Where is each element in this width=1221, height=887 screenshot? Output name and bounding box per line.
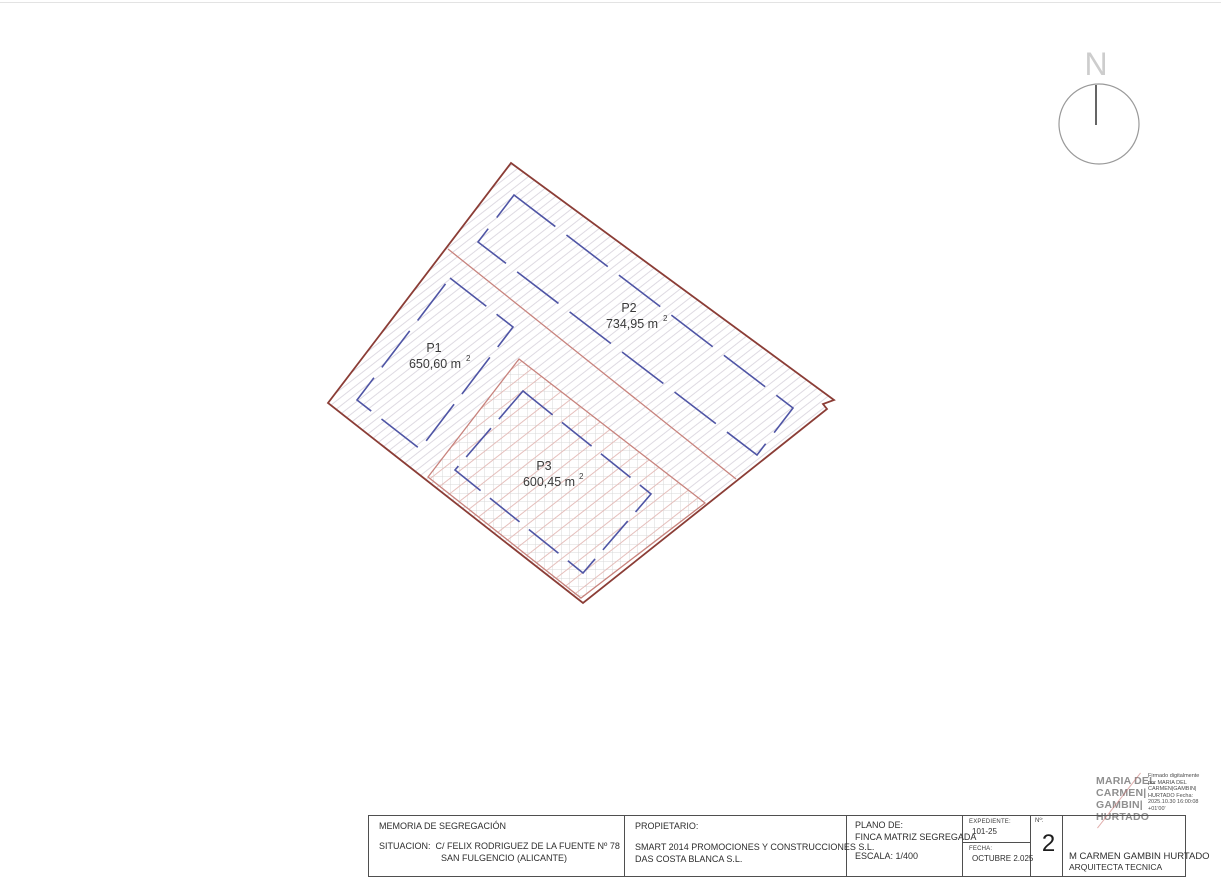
titleblock-project-cell: MEMORIA DE SEGREGACIÓN SITUACION: C/ FEL… [369, 816, 625, 876]
signature-name-line: GAMBIN| [1096, 799, 1156, 811]
title-block: MEMORIA DE SEGREGACIÓN SITUACION: C/ FEL… [368, 815, 1186, 877]
fecha-label: FECHA: [969, 846, 1030, 852]
fecha-value: OCTUBRE 2.025 [972, 854, 1030, 863]
author-name: M CARMEN GAMBIN HURTADO [1069, 851, 1210, 862]
north-circle [1059, 84, 1139, 164]
parcel-p2-area: 734,95 m [606, 317, 658, 331]
plano-label: PLANO DE: [855, 820, 962, 830]
expediente-label: EXPEDIENTE: [969, 819, 1030, 825]
parcel-p2-area-sup: 2 [663, 314, 668, 323]
escala-value: ESCALA: 1/400 [855, 851, 962, 861]
sheet-number-value: 2 [1035, 830, 1062, 858]
titleblock-author-cell: M CARMEN GAMBIN HURTADO ARQUITECTA TECNI… [1063, 816, 1185, 876]
fecha-subcell: FECHA: OCTUBRE 2.025 [963, 843, 1030, 876]
parcel-p1-area-sup: 2 [466, 354, 471, 363]
project-title: MEMORIA DE SEGREGACIÓN [379, 821, 624, 831]
titleblock-owner-cell: PROPIETARIO: SMART 2014 PROMOCIONES Y CO… [625, 816, 847, 876]
north-letter: N [1084, 46, 1107, 82]
situacion-value: C/ FELIX RODRIGUEZ DE LA FUENTE Nº 78 [436, 841, 620, 851]
north-arrow: N [1059, 46, 1139, 164]
drawing-sheet: P1 650,60 m 2 P2 734,95 m 2 P3 600,45 m … [0, 0, 1221, 887]
expediente-subcell: EXPEDIENTE: 101-25 [963, 816, 1030, 843]
propietario-line2: DAS COSTA BLANCA S.L. [635, 854, 846, 864]
sheet-number-label: Nº: [1035, 818, 1062, 824]
situacion-label: SITUACION: [379, 841, 431, 851]
parcel-p3-area: 600,45 m [523, 475, 575, 489]
digital-signature-details: Firmado digitalmente por MARIA DEL CARME… [1148, 773, 1204, 812]
situacion-line: SITUACION: C/ FELIX RODRIGUEZ DE LA FUEN… [379, 841, 624, 851]
parcel-p3-area-sup: 2 [579, 472, 584, 481]
author-role: ARQUITECTA TECNICA [1069, 862, 1210, 873]
titleblock-number-cell: Nº: 2 [1031, 816, 1063, 876]
expediente-value: 101-25 [972, 827, 1030, 836]
propietario-label: PROPIETARIO: [635, 821, 846, 831]
site-plan: P1 650,60 m 2 P2 734,95 m 2 P3 600,45 m … [0, 0, 1221, 887]
parcel-p3-id: P3 [536, 459, 551, 473]
author-block: M CARMEN GAMBIN HURTADO ARQUITECTA TECNI… [1069, 851, 1210, 873]
propietario-line1: SMART 2014 PROMOCIONES Y CONSTRUCCIONES … [635, 842, 846, 852]
plano-value: FINCA MATRIZ SEGREGADA [855, 832, 962, 842]
situacion-city: SAN FULGENCIO (ALICANTE) [441, 853, 624, 863]
titleblock-expediente-cell: EXPEDIENTE: 101-25 FECHA: OCTUBRE 2.025 [963, 816, 1031, 876]
parcel-p1-area: 650,60 m [409, 357, 461, 371]
parcel-p1-id: P1 [426, 341, 441, 355]
signature-name-line: MARIA DEL [1096, 775, 1156, 787]
titleblock-plano-cell: PLANO DE: FINCA MATRIZ SEGREGADA ESCALA:… [847, 816, 963, 876]
parcel-p2-id: P2 [621, 301, 636, 315]
